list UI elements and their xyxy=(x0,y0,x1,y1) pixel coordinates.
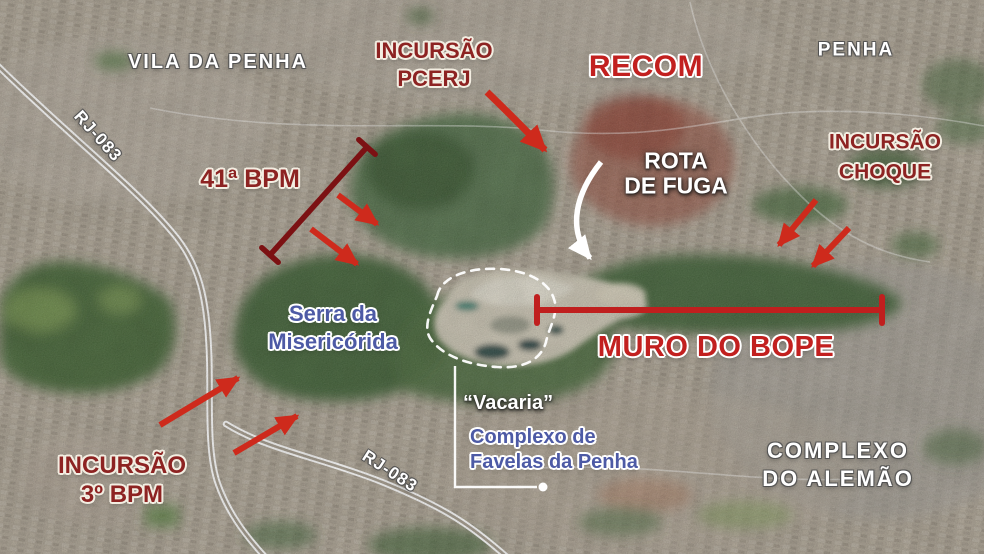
bpm3-attack-arrow-1 xyxy=(160,378,238,425)
label-complexo-do-alemao-line1: COMPLEXO xyxy=(762,437,914,465)
label-incursao-pcerj-line1: INCURSÃO xyxy=(375,37,492,65)
label-complexo-do-alemao: COMPLEXO DO ALEMÃO xyxy=(762,437,914,493)
label-incursao-choque: INCURSÃO CHOQUE xyxy=(829,128,941,189)
label-41-bpm: 41ª BPM xyxy=(200,165,300,193)
label-complexo-do-alemao-line2: DO ALEMÃO xyxy=(762,465,914,493)
label-recom: RECOM xyxy=(589,50,703,84)
label-incursao-3-bpm-line1: INCURSÃO xyxy=(58,452,186,481)
news-map-graphic: VILA DA PENHA RJ-083 41ª BPM INCURSÃO PC… xyxy=(0,0,984,554)
label-rota-de-fuga-line1: ROTA xyxy=(624,149,728,174)
label-incursao-choque-line2: CHOQUE xyxy=(829,158,941,188)
label-serra-line1: Serra da xyxy=(268,300,398,328)
bpm41-attack-arrow-1 xyxy=(338,195,377,224)
label-rota-de-fuga: ROTA DE FUGA xyxy=(624,149,728,200)
label-complexo-favelas-line2: Favelas da Penha xyxy=(470,450,638,475)
label-vila-da-penha: VILA DA PENHA xyxy=(128,51,308,73)
vacaria-leader-dot xyxy=(539,483,548,492)
label-serra-line2: Misericórida xyxy=(268,328,398,356)
label-incursao-choque-line1: INCURSÃO xyxy=(829,128,941,158)
label-incursao-pcerj-line2: PCERJ xyxy=(375,65,492,93)
label-incursao-3-bpm: INCURSÃO 3º BPM xyxy=(58,452,186,510)
label-complexo-favelas-line1: Complexo de xyxy=(470,425,638,450)
bpm41-front-line xyxy=(262,140,375,263)
label-vacaria: “Vacaria” xyxy=(463,392,553,414)
bpm3-attack-arrow-2 xyxy=(234,416,297,453)
pcerj-attack-arrow xyxy=(487,92,545,150)
muro-do-bope-line xyxy=(537,297,882,323)
choque-attack-arrow-2 xyxy=(813,228,849,266)
choque-attack-arrow-1 xyxy=(779,200,816,245)
bpm41-attack-arrow-2 xyxy=(311,229,357,264)
rota-de-fuga-arrow xyxy=(577,162,601,258)
label-muro-do-bope: MURO DO BOPE xyxy=(598,331,834,363)
label-incursao-pcerj: INCURSÃO PCERJ xyxy=(375,37,492,93)
label-penha: PENHA xyxy=(818,39,895,60)
label-rota-de-fuga-line2: DE FUGA xyxy=(624,174,728,199)
label-incursao-3-bpm-line2: 3º BPM xyxy=(58,481,186,510)
label-serra-da-misericorida: Serra da Misericórida xyxy=(268,300,398,356)
label-complexo-favelas-penha: Complexo de Favelas da Penha xyxy=(470,425,638,475)
